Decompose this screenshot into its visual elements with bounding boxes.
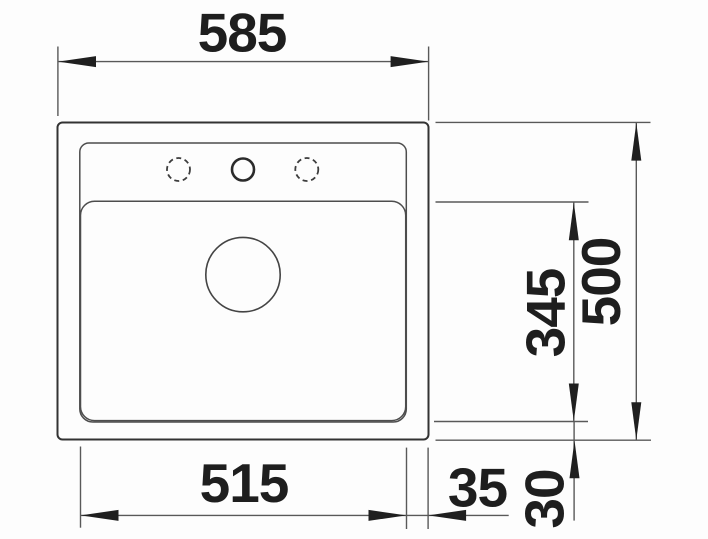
svg-text:585: 585 [198, 2, 287, 64]
svg-text:500: 500 [570, 238, 632, 327]
svg-text:345: 345 [515, 268, 577, 357]
svg-text:30: 30 [514, 469, 576, 528]
svg-text:35: 35 [448, 457, 508, 519]
svg-text:515: 515 [200, 452, 289, 514]
